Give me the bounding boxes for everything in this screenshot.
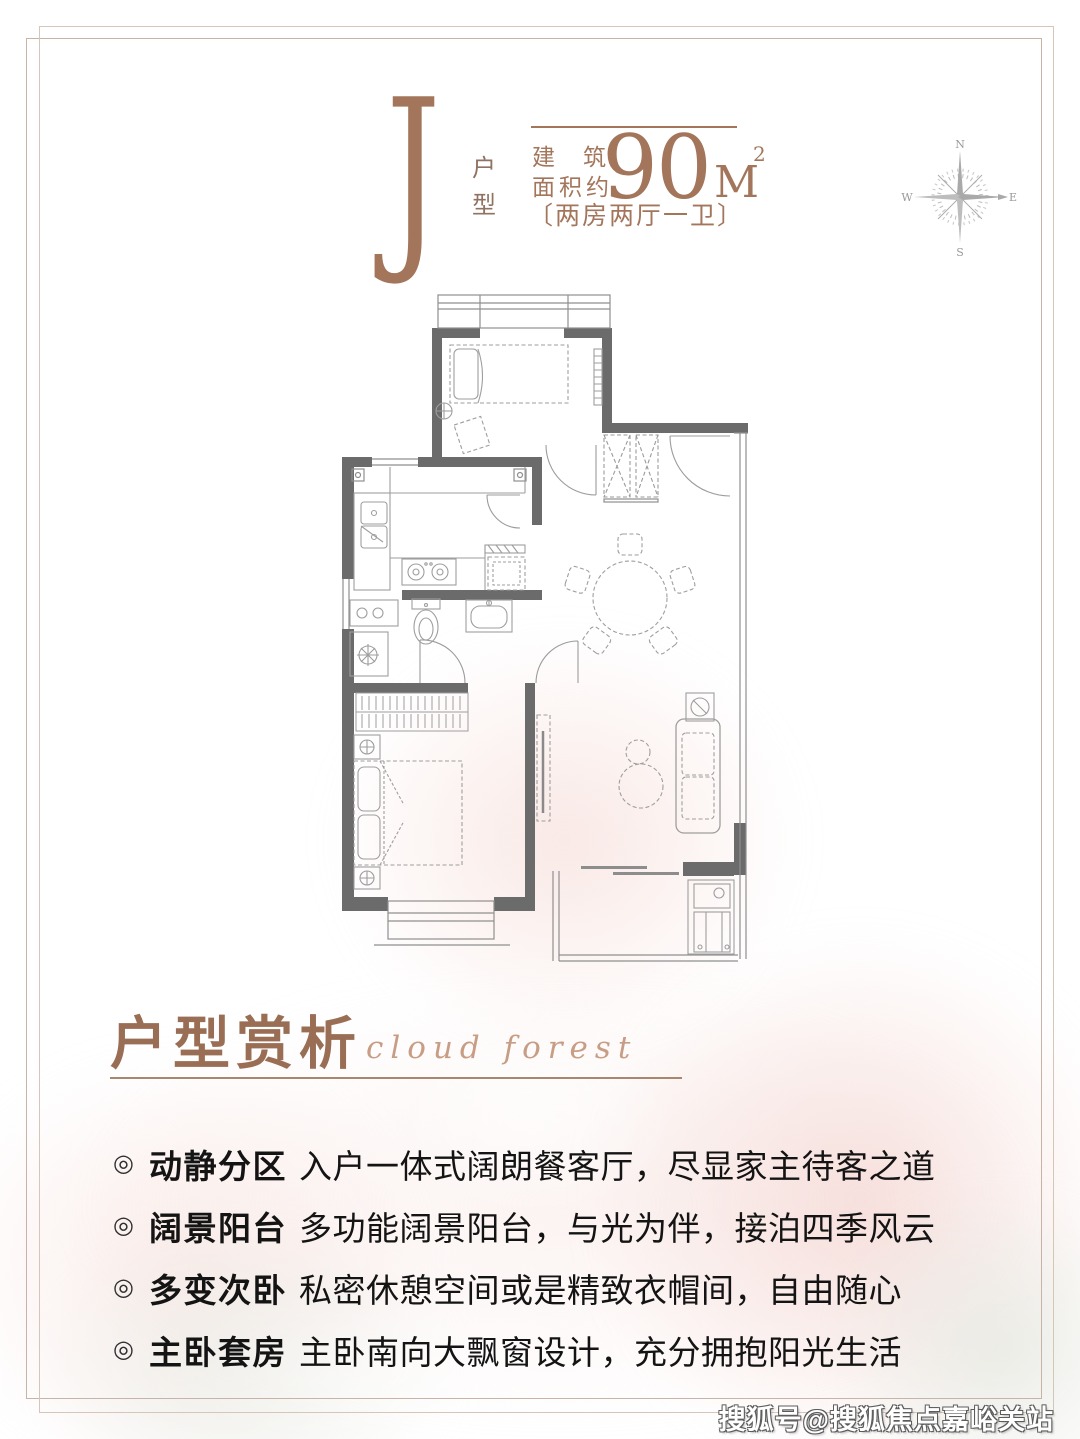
floorplan-poster: J 户型 建筑 面积约 90 M 2 〔两房两厅一卫〕 N S W E	[0, 0, 1080, 1439]
watermark: 搜狐号@搜狐焦点嘉峪关站	[719, 1398, 1054, 1437]
doors	[420, 436, 730, 683]
compass-icon: N S W E	[900, 137, 1020, 257]
windows	[343, 295, 748, 961]
unit-type-label: 户型	[472, 150, 499, 224]
compass-s: S	[956, 246, 964, 257]
feature-desc: 私密休憩空间或是精致衣帽间，自由随心	[299, 1264, 902, 1312]
master-bedroom	[354, 735, 462, 889]
wardrobe	[356, 693, 468, 731]
bullet-icon: ◎	[113, 1276, 139, 1300]
compass-e: E	[1009, 191, 1017, 204]
living-dining	[537, 534, 720, 833]
feature-desc: 主卧南向大飘窗设计，充分拥抱阳光生活	[299, 1326, 902, 1374]
compass-n: N	[955, 138, 965, 151]
feature-term: 阔景阳台	[149, 1202, 299, 1250]
feature-desc: 多功能阔景阳台，与光为伴，接泊四季风云	[299, 1202, 936, 1250]
kitchen	[354, 467, 525, 590]
entry-closet	[604, 435, 658, 497]
bedroom2-furniture	[436, 345, 602, 454]
balcony-washer	[688, 880, 734, 954]
bathroom	[350, 599, 512, 676]
bullet-icon: ◎	[113, 1214, 139, 1238]
compass-w: W	[901, 191, 913, 204]
bullet-icon: ◎	[113, 1338, 139, 1362]
unit-letter: J	[386, 74, 441, 274]
feature-row: ◎ 多变次卧 私密休憩空间或是精致衣帽间，自由随心	[113, 1267, 902, 1309]
sliding-door	[581, 866, 679, 875]
section-title: 户型赏析	[110, 998, 362, 1080]
feature-term: 多变次卧	[149, 1264, 299, 1312]
area-exponent: 2	[753, 144, 766, 164]
feature-desc: 入户一体式阔朗餐客厅，尽显家主待客之道	[299, 1140, 936, 1188]
section-rule	[110, 1077, 682, 1079]
section-subtitle-script: cloud forest	[366, 1030, 637, 1066]
feature-term: 动静分区	[149, 1140, 299, 1188]
feature-row: ◎ 阔景阳台 多功能阔景阳台，与光为伴，接泊四季风云	[113, 1205, 936, 1247]
bullet-icon: ◎	[113, 1152, 139, 1176]
rooms-bracket-label: 〔两房两厅一卫〕	[528, 196, 744, 232]
floor-plan	[338, 283, 748, 973]
feature-row: ◎ 主卧套房 主卧南向大飘窗设计，充分拥抱阳光生活	[113, 1329, 902, 1371]
feature-term: 主卧套房	[149, 1326, 299, 1374]
feature-row: ◎ 动静分区 入户一体式阔朗餐客厅，尽显家主待客之道	[113, 1143, 936, 1185]
